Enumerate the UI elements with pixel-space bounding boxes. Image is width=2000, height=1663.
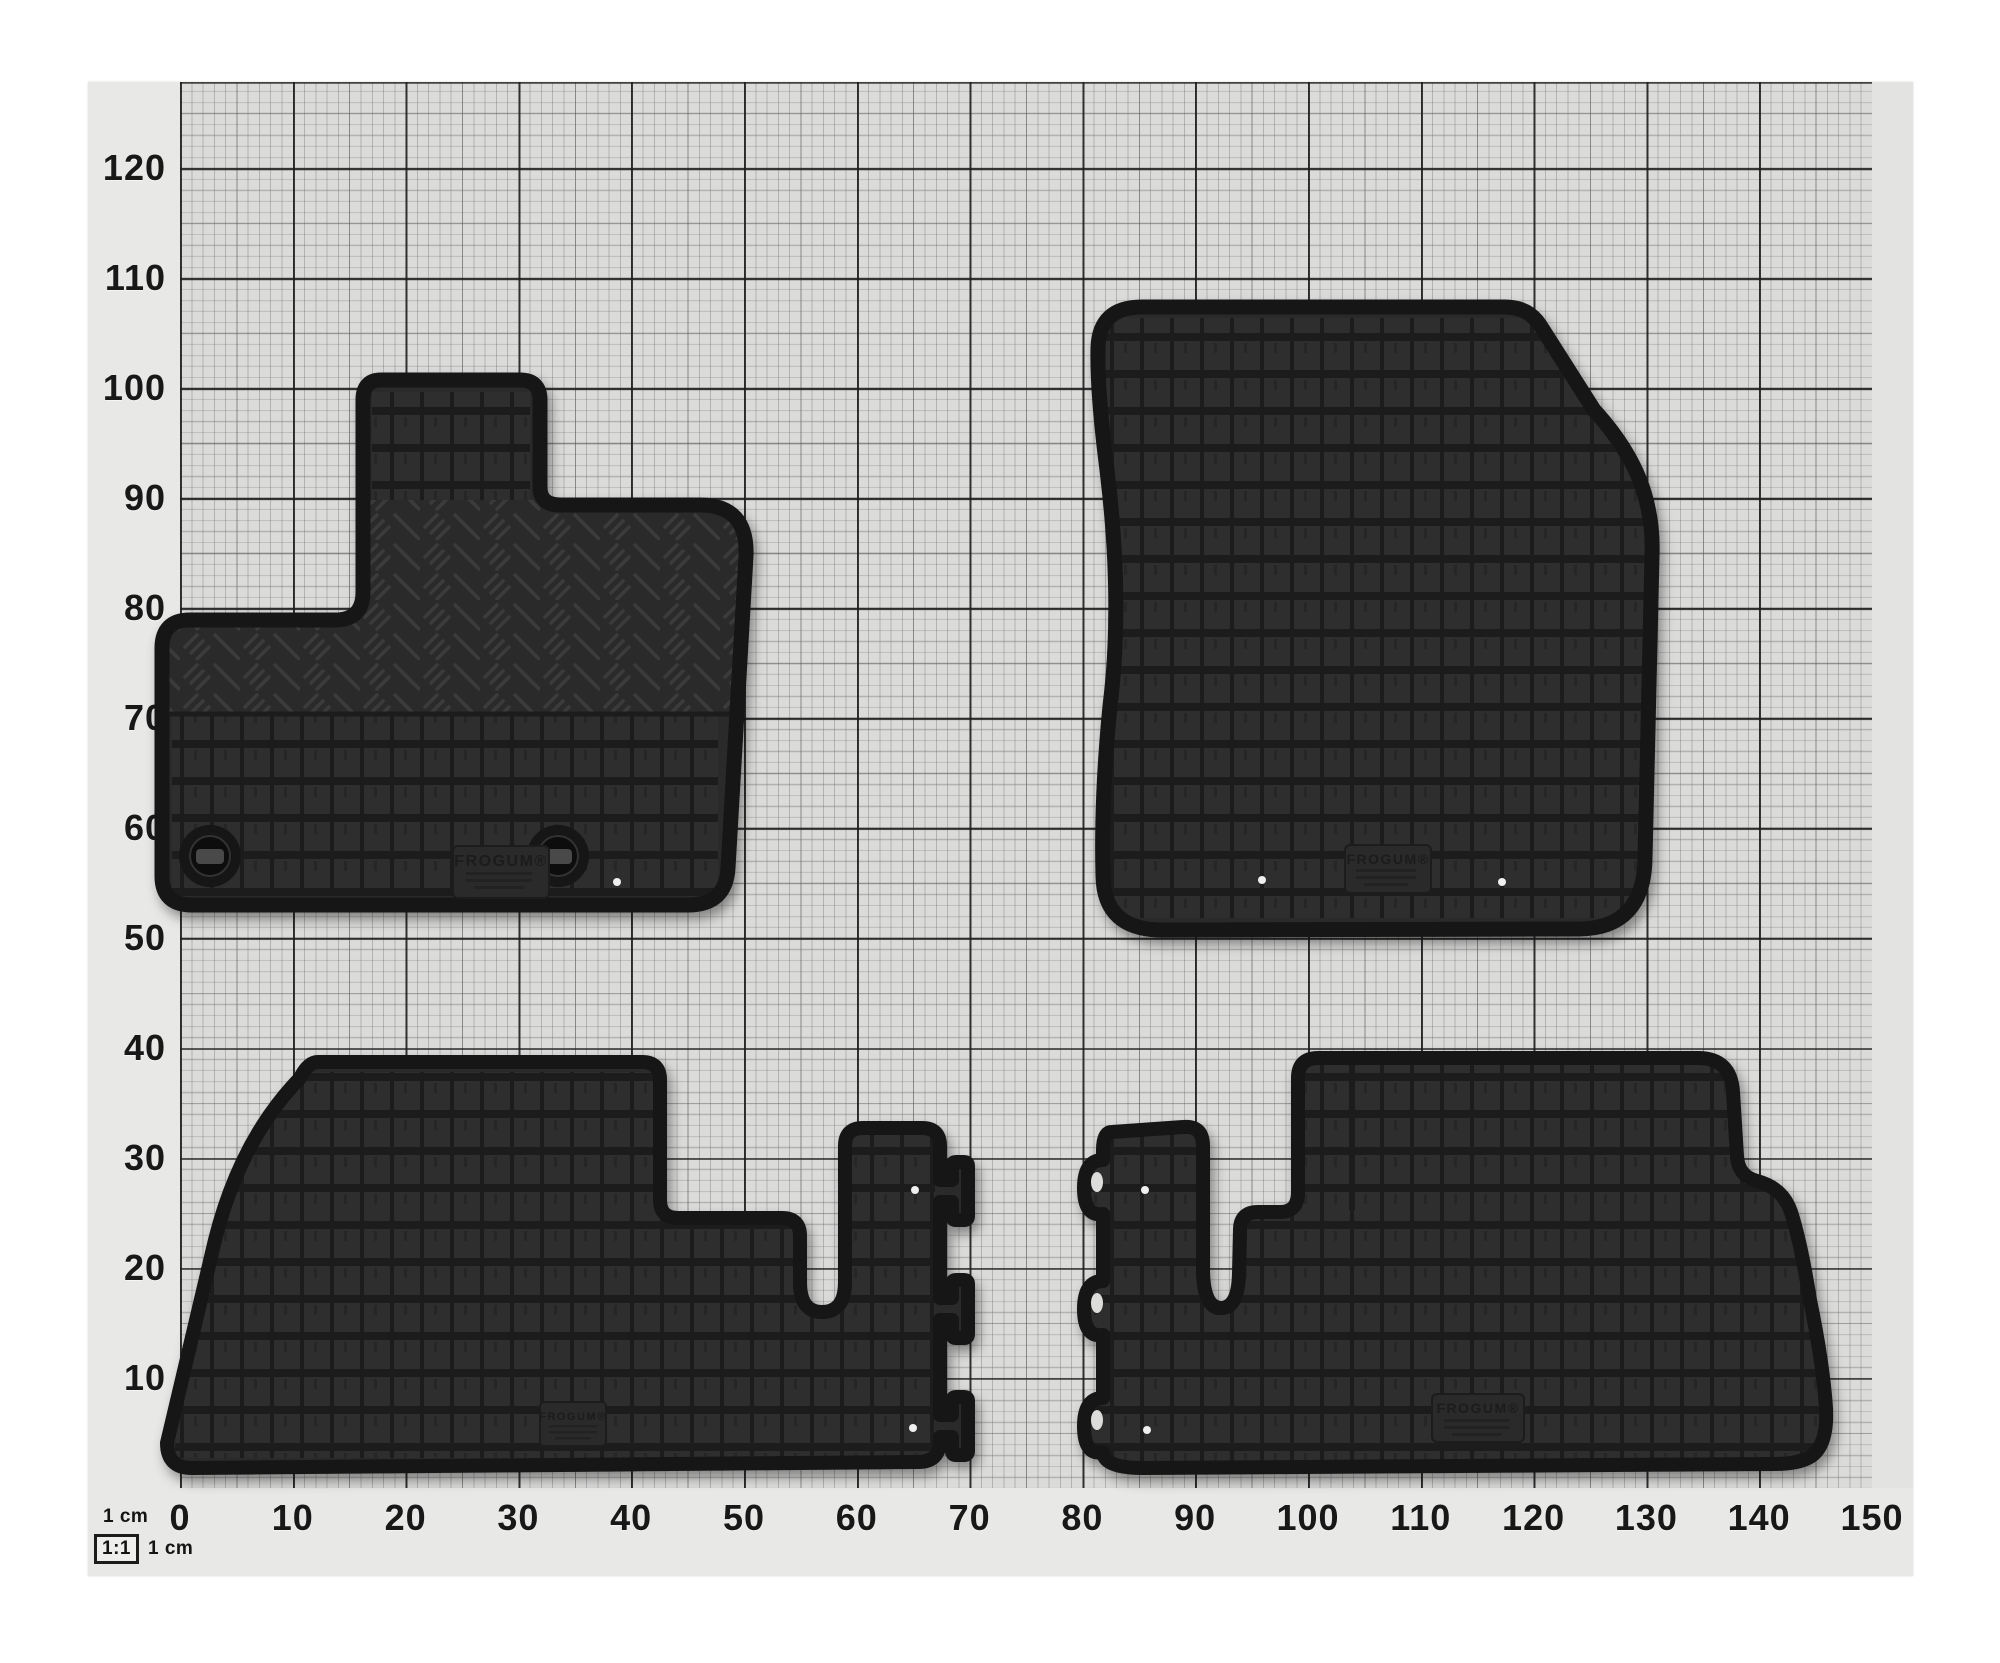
x-axis-tick-20: 20 [356,1496,456,1540]
y-axis-tick-20: 20 [88,1246,166,1290]
x-axis-tick-130: 130 [1596,1496,1696,1540]
x-axis-tick-30: 30 [468,1496,568,1540]
x-axis-tick-100: 100 [1258,1496,1358,1540]
x-axis-tick-40: 40 [581,1496,681,1540]
x-axis-tick-80: 80 [1032,1496,1132,1540]
paper-right-margin [1872,82,1913,1488]
y-axis-tick-40: 40 [88,1026,166,1070]
x-axis-tick-50: 50 [694,1496,794,1540]
product-photo: 120110100908070605040302010 010203040506… [88,82,1913,1576]
y-axis-tick-70: 70 [88,696,166,740]
x-axis-tick-90: 90 [1145,1496,1245,1540]
y-axis-tick-100: 100 [88,366,166,410]
scale-1cm-label-top: 1 cm [103,1506,234,1528]
scale-1cm-label-side: 1 cm [148,1538,193,1560]
y-axis-tick-110: 110 [88,256,166,300]
x-axis-tick-110: 110 [1371,1496,1471,1540]
x-axis-tick-60: 60 [807,1496,907,1540]
y-axis-tick-10: 10 [88,1356,166,1400]
scale-ratio-box: 1:1 [94,1534,139,1564]
graph-paper-grid [180,82,1872,1488]
y-axis-tick-120: 120 [88,146,166,190]
y-axis-tick-80: 80 [88,586,166,630]
y-axis-tick-30: 30 [88,1136,166,1180]
y-axis-tick-90: 90 [88,476,166,520]
x-axis-tick-120: 120 [1484,1496,1584,1540]
x-axis-tick-70: 70 [920,1496,1020,1540]
y-axis-tick-50: 50 [88,916,166,960]
y-axis-tick-60: 60 [88,806,166,850]
x-axis-tick-140: 140 [1709,1496,1809,1540]
x-axis-tick-10: 10 [243,1496,343,1540]
screenshot-page: 120110100908070605040302010 010203040506… [0,0,2000,1663]
scale-legend: 1 cm 1:1 1 cm [94,1506,234,1564]
x-axis-tick-150: 150 [1822,1496,1922,1540]
